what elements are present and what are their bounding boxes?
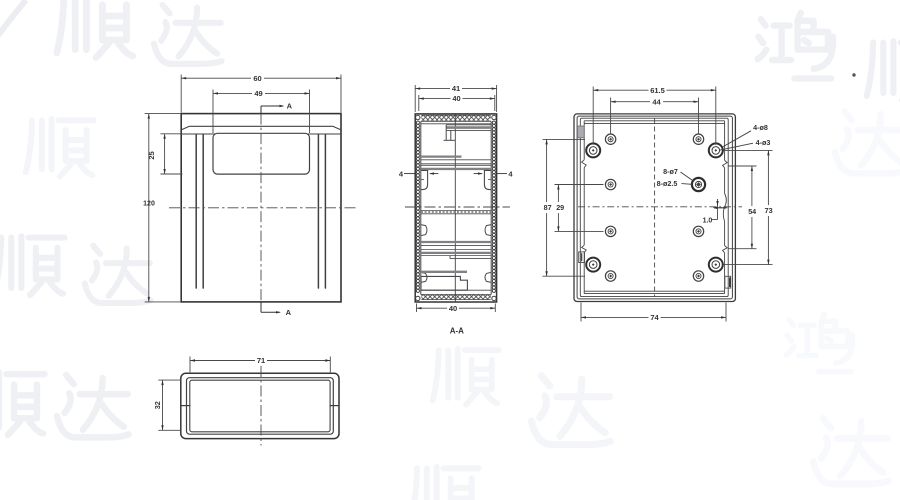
svg-text:49: 49 — [254, 89, 262, 98]
svg-text:4-ø8: 4-ø8 — [753, 123, 768, 132]
svg-text:A-A: A-A — [450, 327, 464, 336]
svg-text:54: 54 — [748, 207, 756, 216]
svg-text:60: 60 — [253, 74, 261, 83]
svg-text:8-ø7: 8-ø7 — [663, 167, 678, 176]
svg-text:40: 40 — [449, 304, 457, 313]
svg-text:71: 71 — [257, 356, 265, 365]
svg-text:61.5: 61.5 — [650, 86, 665, 95]
svg-text:29: 29 — [556, 203, 564, 212]
svg-text:73: 73 — [765, 206, 773, 215]
svg-text:1.0: 1.0 — [703, 218, 713, 225]
svg-text:40: 40 — [452, 94, 460, 103]
svg-text:41: 41 — [452, 84, 460, 93]
svg-text:74: 74 — [650, 313, 659, 322]
svg-text:A: A — [286, 308, 292, 317]
svg-text:4-ø3: 4-ø3 — [756, 138, 771, 147]
svg-text:120: 120 — [143, 200, 155, 207]
svg-text:8-ø2.5: 8-ø2.5 — [657, 179, 678, 188]
svg-text:87: 87 — [544, 203, 552, 212]
svg-text:32: 32 — [153, 401, 162, 409]
svg-text:44: 44 — [652, 97, 661, 106]
svg-text:A: A — [287, 102, 293, 111]
